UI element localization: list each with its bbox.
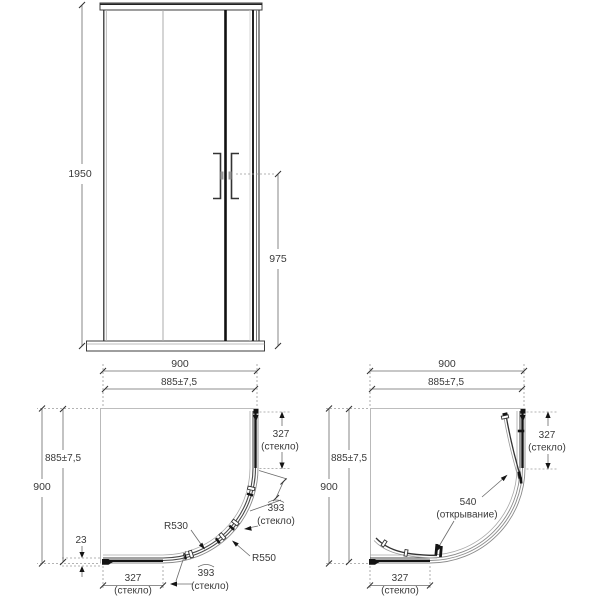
front-elevation-view: 1950 975	[68, 2, 287, 351]
dimension-opening: 540 (открывание)	[436, 475, 507, 552]
arrow	[170, 581, 177, 586]
dim-label: 900	[438, 358, 456, 370]
ext-line	[259, 471, 287, 480]
door-glass-arc	[163, 468, 253, 558]
plan-view-open: 900 885±7,5 900 885±7,5 327 (стекло)	[320, 358, 566, 597]
left-handle-mount	[221, 172, 224, 180]
dim-label: 900	[320, 481, 338, 493]
ext-line	[176, 551, 186, 581]
wall-lines	[371, 409, 526, 564]
dim-note: (стекло)	[381, 586, 419, 597]
dim-label: 885±7,5	[428, 377, 465, 388]
corner-profile-block	[254, 409, 259, 414]
dimension-overall-width: 900	[367, 358, 527, 374]
left-handle	[213, 154, 221, 199]
dimension-side-door-arc: 393 (стекло)	[244, 471, 295, 531]
dim-label: 540	[460, 497, 477, 508]
leader	[482, 477, 505, 497]
dim-note: (стекло)	[528, 443, 566, 454]
dim-note: (стекло)	[261, 442, 299, 453]
door-glass	[506, 415, 522, 480]
dim-note: (стекло)	[257, 516, 295, 527]
ext-line	[260, 412, 292, 469]
dim-note: (стекло)	[191, 581, 229, 592]
dim-label: 393	[198, 568, 215, 579]
dimension-handle-height: 975	[236, 171, 287, 349]
dimension-profile-offset: 23	[75, 535, 87, 577]
door-stop-mark	[519, 477, 522, 483]
dimension-radius-inner: R530	[164, 521, 205, 550]
dim-label: 885±7,5	[331, 453, 368, 464]
arrow	[199, 543, 205, 550]
dim-note: (открывание)	[436, 510, 497, 521]
dim-label: 885±7,5	[45, 453, 82, 464]
dim-label: R530	[164, 521, 188, 532]
tick	[281, 479, 287, 485]
dim-label: 900	[33, 481, 51, 493]
shower-enclosure-technical-drawing: 1950 975	[0, 0, 600, 600]
dimension-bottom-glass: 327 (стекло)	[100, 573, 166, 597]
dim-line	[276, 482, 284, 499]
ext-line	[62, 558, 102, 566]
dimension-side-glass: 327 (стекло)	[528, 412, 566, 470]
arrow	[279, 412, 284, 419]
roller-mark	[501, 415, 508, 419]
bottom-profile	[87, 341, 265, 351]
dimension-overall-height: 1950	[68, 2, 92, 349]
front-track	[103, 411, 258, 563]
fitting-mark	[518, 430, 524, 433]
arrow	[545, 463, 550, 470]
open-door-right	[501, 412, 524, 483]
arrow	[279, 463, 284, 470]
dim-label: 327	[392, 573, 409, 584]
roller-marks	[183, 486, 255, 560]
dim-note: (стекло)	[114, 586, 152, 597]
arrow	[244, 526, 252, 531]
plan-view-closed: 900 885±7,5 900 885±7,5 23	[33, 358, 299, 597]
dim-label: 1950	[68, 168, 92, 180]
dimension-adjust-width: 885±7,5	[369, 377, 525, 392]
dim-label: 393	[268, 503, 285, 514]
front-track	[370, 411, 525, 563]
right-handle-mount	[229, 172, 232, 180]
track-arc	[163, 468, 250, 555]
track-arc	[163, 468, 258, 563]
arrow	[545, 412, 550, 419]
arrow	[79, 566, 84, 572]
arrow	[79, 552, 84, 558]
corner-profile-block	[521, 409, 526, 414]
dimension-bottom-glass: 327 (стекло)	[367, 573, 433, 597]
dim-label: R550	[252, 553, 276, 564]
dimension-adjust-width: 885±7,5	[102, 377, 258, 392]
arc-symbol	[198, 565, 214, 568]
roller-mark	[404, 549, 408, 556]
dim-label: 900	[171, 358, 189, 370]
dimension-side-glass: 327 (стекло)	[261, 412, 299, 470]
dim-label: 327	[125, 573, 142, 584]
dim-label: 885±7,5	[161, 377, 198, 388]
dim-label: 327	[273, 429, 290, 440]
dim-label: 23	[75, 535, 87, 546]
dimension-overall-width: 900	[100, 358, 260, 374]
dim-label: 327	[539, 430, 556, 441]
leader	[438, 521, 454, 548]
dimension-overall-depth: 900	[33, 406, 51, 567]
right-handle	[232, 154, 240, 199]
dimension-radius-outer: R550	[232, 541, 276, 565]
dim-label: 975	[269, 253, 287, 265]
door-glass-arc	[163, 468, 256, 561]
wall-lines	[101, 409, 259, 564]
dimension-overall-depth: 900	[320, 406, 338, 567]
